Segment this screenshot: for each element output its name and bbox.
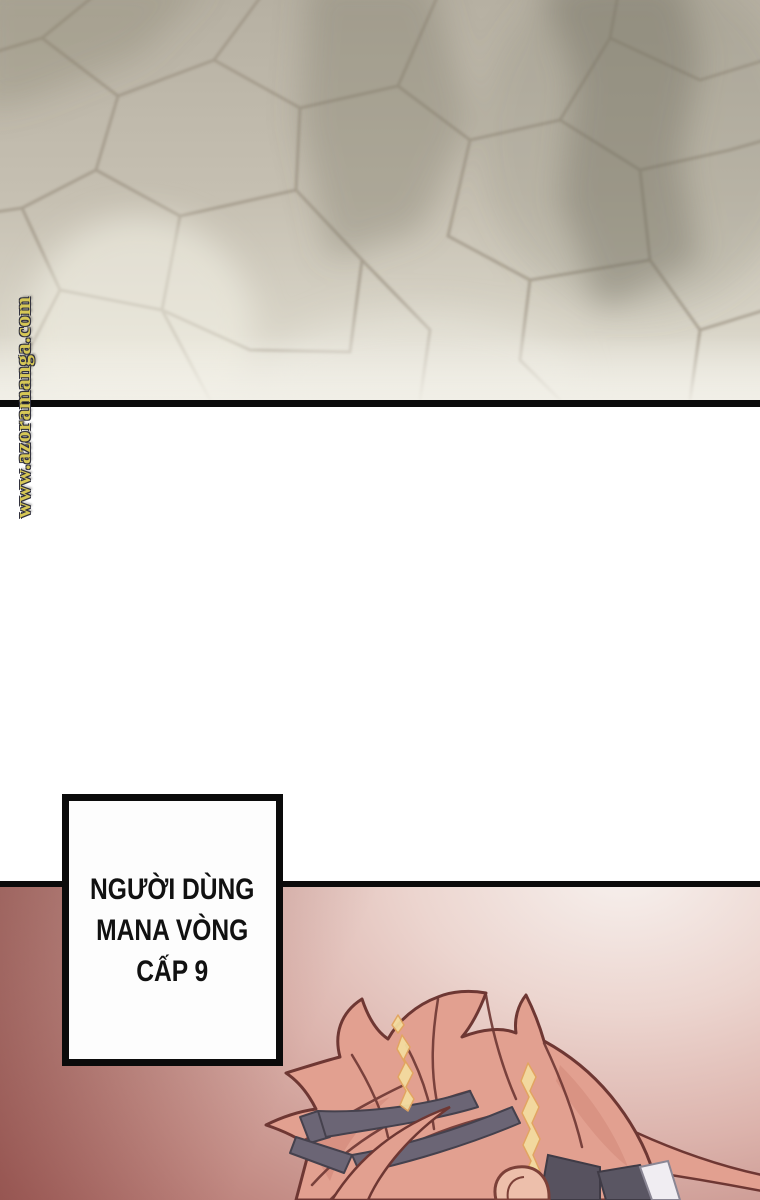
stone-floor-panel (0, 0, 760, 400)
dialogue-line-2: MANA VÒNG (90, 910, 254, 951)
manga-page: NGƯỜI DÙNG MANA VÒNG CẤP 9 www.azoramang… (0, 0, 760, 1200)
dialogue-line-3: CẤP 9 (90, 951, 254, 992)
dialogue-line-1: NGƯỜI DÙNG (90, 869, 254, 910)
stone-floor-art (0, 0, 760, 400)
panel-divider (0, 400, 760, 407)
site-watermark: www.azoramanga.com (10, 258, 36, 518)
dialogue-box: NGƯỜI DÙNG MANA VÒNG CẤP 9 (62, 794, 283, 1066)
dialogue-text: NGƯỜI DÙNG MANA VÒNG CẤP 9 (90, 869, 254, 992)
